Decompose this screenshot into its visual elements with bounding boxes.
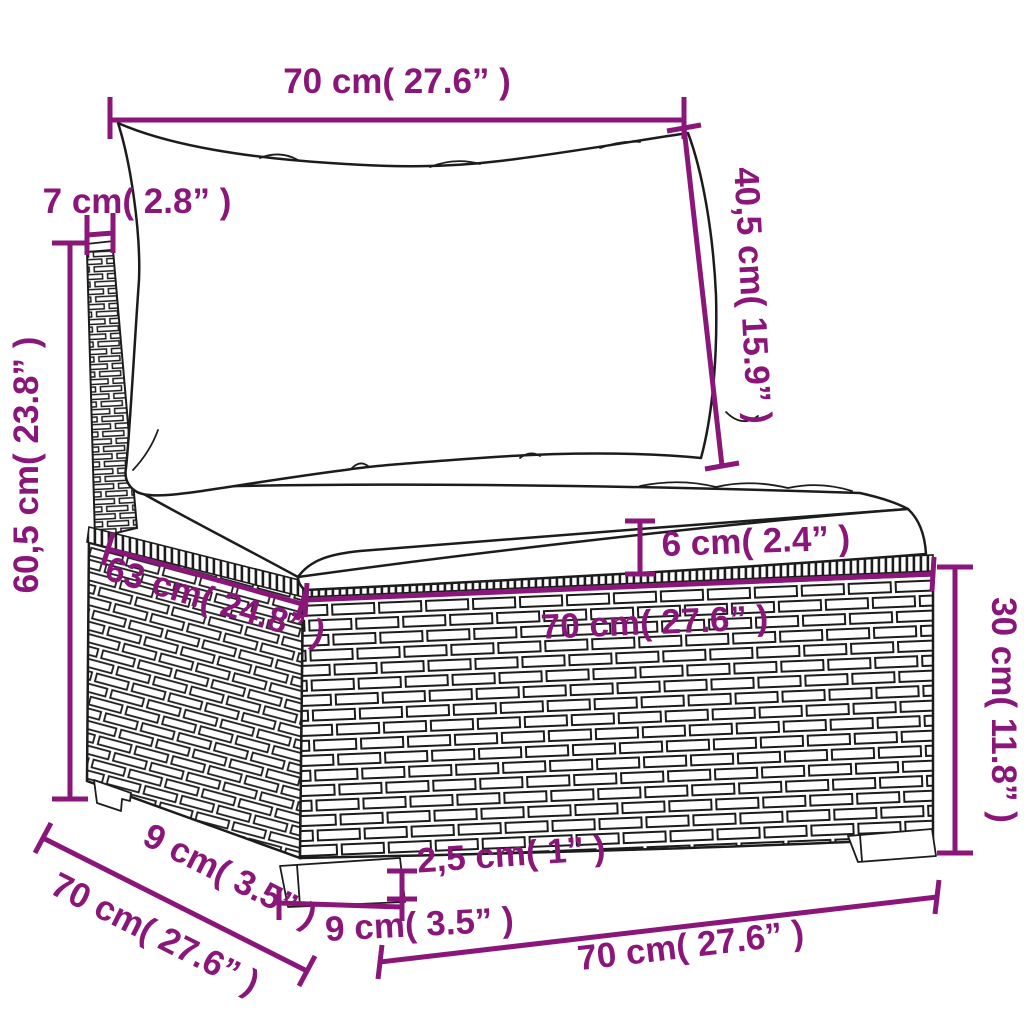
dim-label-seat-cushion-thickness: 6 cm( 2.4” ) bbox=[661, 518, 851, 564]
back-cushion bbox=[118, 123, 758, 495]
dim-label-total-width: 70 cm( 27.6” ) bbox=[575, 913, 806, 978]
back-post bbox=[86, 241, 137, 538]
dim-base-height: 30 cm( 11.8” ) bbox=[937, 567, 1023, 853]
dimension-diagram: 70 cm( 27.6” ) 40,5 cm( 15.9” ) 7 cm( 2.… bbox=[0, 0, 1024, 1024]
dim-label-total-height: 60,5 cm( 23.8” ) bbox=[7, 337, 46, 594]
diagram-canvas: 70 cm( 27.6” ) 40,5 cm( 15.9” ) 7 cm( 2.… bbox=[0, 0, 1024, 1024]
dim-total-height: 60,5 cm( 23.8” ) bbox=[7, 243, 88, 799]
sofa-illustration bbox=[86, 123, 936, 907]
dim-label-back-cushion-width: 70 cm( 27.6” ) bbox=[283, 62, 511, 101]
dim-back-cushion-width: 70 cm( 27.6” ) bbox=[110, 62, 684, 139]
dim-label-base-height: 30 cm( 11.8” ) bbox=[984, 597, 1023, 823]
dim-label-back-depth: 7 cm( 2.8” ) bbox=[43, 182, 232, 221]
dim-label-back-cushion-height: 40,5 cm( 15.9” ) bbox=[726, 166, 778, 425]
